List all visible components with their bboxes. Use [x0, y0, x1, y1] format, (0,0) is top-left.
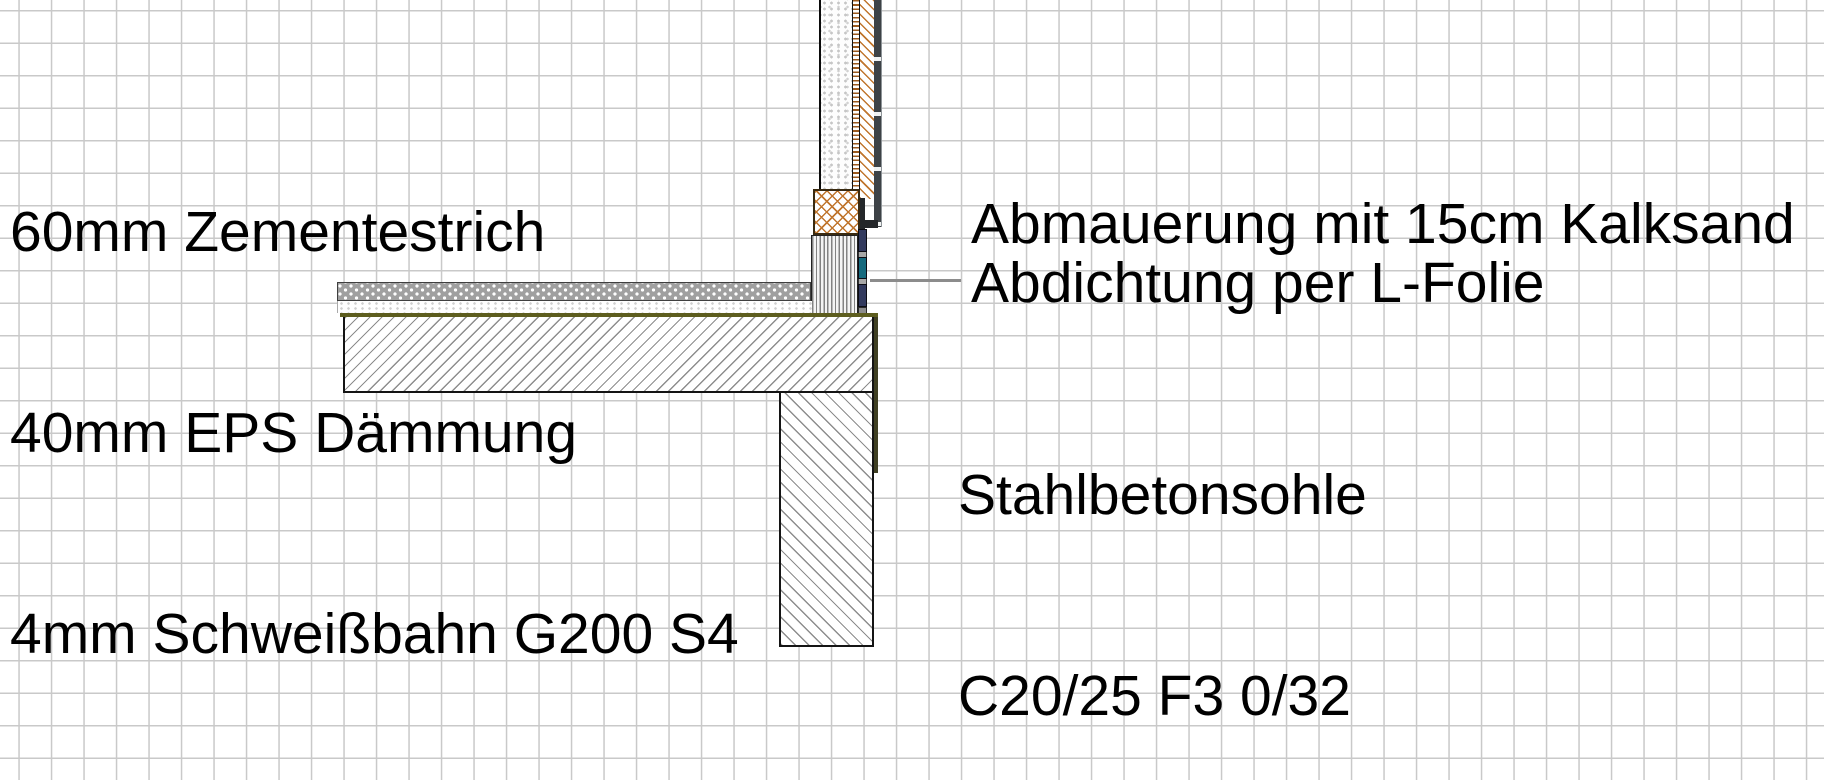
l-folie-edge-strip	[874, 317, 878, 473]
label-abdichtung: Abdichtung per L-Folie	[971, 250, 1545, 317]
abmauerung-kalksandstein-block	[811, 235, 858, 315]
label-abmauerung: Abmauerung mit 15cm Kalksand	[971, 191, 1795, 258]
navy-profile-bottom	[858, 284, 867, 307]
label-stahlbetonsohle: Stahlbetonsohle	[958, 462, 1367, 529]
leader-line	[870, 279, 961, 282]
facade-cladding-boards	[874, 0, 882, 227]
sockel-profile-stack	[858, 229, 867, 315]
timber-sill-block	[813, 189, 860, 235]
wall-outer-insulation-hatch	[860, 0, 874, 199]
wall-masonry-section	[819, 0, 854, 190]
cad-drawing-canvas: 60mm Zementestrich 40mm EPS Dämmung 4mm …	[0, 0, 1824, 780]
label-zementestrich: 60mm Zementestrich	[10, 199, 739, 266]
foundation-note: Streifenfundament C16/20 F3 0/32	[611, 652, 1077, 780]
cladding-end-profile	[864, 220, 878, 228]
label-eps-daemmung: 40mm EPS Dämmung	[10, 400, 739, 467]
wall-adhesive-layer	[852, 0, 860, 190]
teal-profile	[858, 257, 867, 279]
strip-foundation	[779, 393, 874, 647]
navy-profile-top	[858, 229, 867, 252]
